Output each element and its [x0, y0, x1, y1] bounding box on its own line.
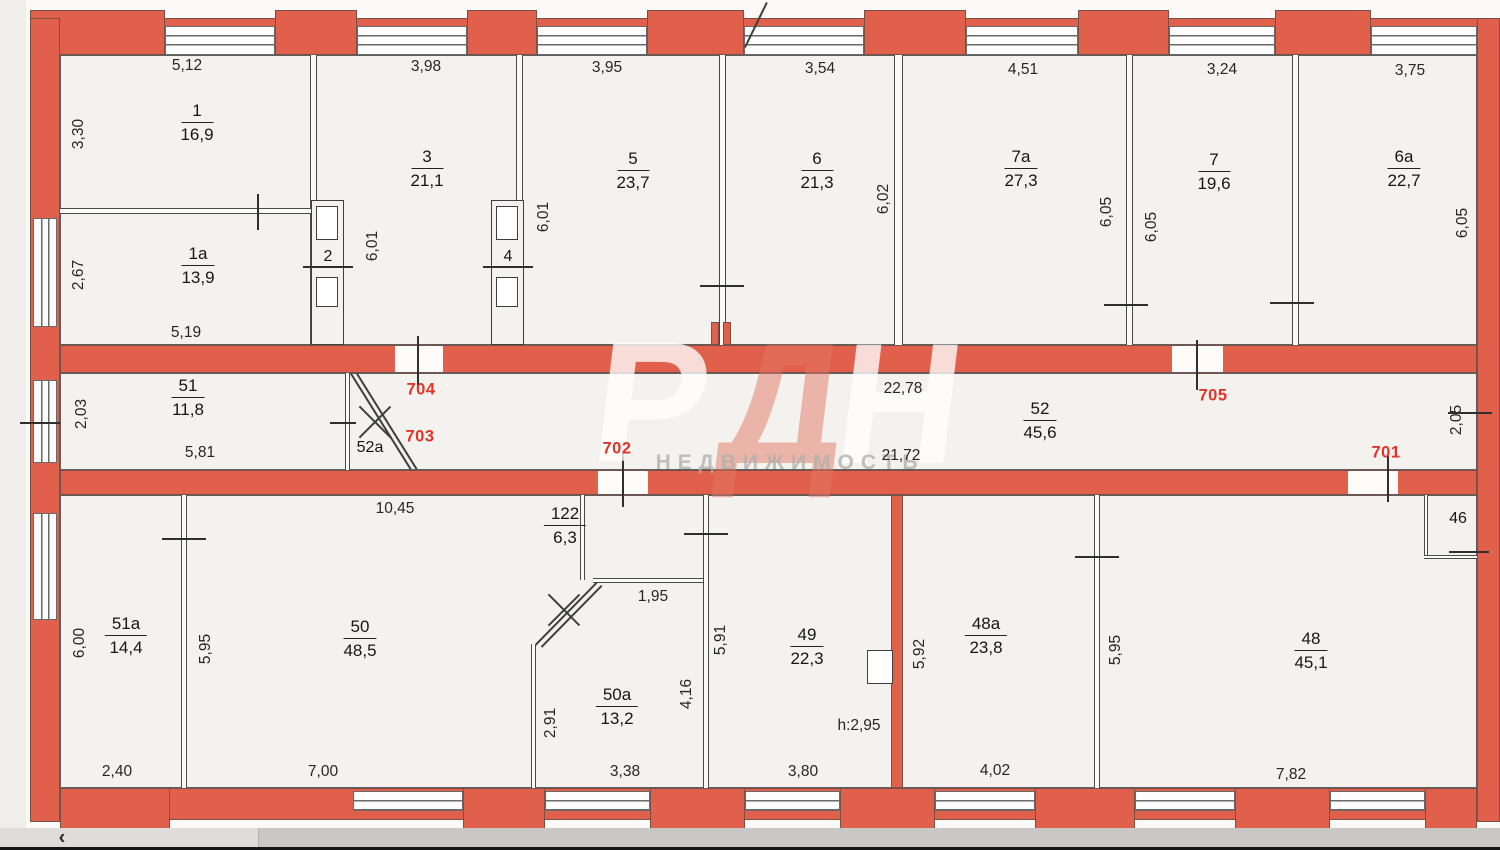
- room-label: 719,6: [1197, 150, 1230, 195]
- dim-label: 3,98: [411, 58, 441, 76]
- room-number: 6a: [1388, 147, 1421, 169]
- room-label: 1a13,9: [181, 244, 214, 289]
- door-number: 704: [406, 381, 435, 400]
- wall-pier: [864, 10, 966, 55]
- room-label: 4845,1: [1294, 629, 1327, 674]
- room-label: 51a14,4: [105, 614, 147, 659]
- room-label: 4922,3: [790, 625, 823, 670]
- room-area: 21,1: [410, 169, 443, 191]
- dimension-tick: [1270, 302, 1314, 304]
- ceiling-height-note: h:2,95: [837, 717, 880, 735]
- room-area: 19,6: [1197, 172, 1230, 194]
- dim-label: 1,95: [638, 588, 668, 606]
- dim-label: 6,02: [875, 184, 893, 214]
- window: [745, 791, 840, 811]
- room-number: 49: [791, 625, 824, 647]
- door-swing-mark: [541, 588, 585, 632]
- upper-band-floor: [60, 55, 1477, 345]
- dim-label: 10,45: [376, 500, 415, 518]
- dim-label: 7,82: [1276, 766, 1306, 784]
- lower-band-floor: [60, 495, 1477, 788]
- dim-label: 5,92: [911, 639, 929, 669]
- dim-label: 5,19: [171, 324, 201, 342]
- room-area: 23,7: [616, 171, 649, 193]
- room-number: 48: [1295, 629, 1328, 651]
- room-label: 5111,8: [172, 376, 205, 421]
- room-label: 5048,5: [343, 617, 376, 662]
- dim-label: 6,00: [71, 628, 89, 658]
- scrollbar-thumb[interactable]: [258, 828, 1500, 847]
- dimension-tick: [483, 266, 533, 268]
- dim-label: 3,38: [610, 763, 640, 781]
- window: [353, 791, 463, 811]
- dim-label: 2,91: [542, 708, 560, 738]
- room-label: 48a23,8: [965, 614, 1007, 659]
- dimension-tick: [162, 538, 206, 540]
- partition-wall: [60, 208, 312, 214]
- room-number: 52: [1024, 399, 1057, 421]
- window: [537, 26, 647, 55]
- room-area: 14,4: [105, 636, 147, 658]
- window: [1135, 791, 1235, 811]
- room-area: 23,8: [965, 636, 1007, 658]
- wall-pier: [60, 788, 170, 832]
- room-number: 6: [801, 149, 833, 171]
- door-number: 701: [1371, 444, 1400, 463]
- partition-wall: [1424, 555, 1477, 559]
- dimension-tick: [20, 422, 60, 424]
- dim-label: 2,03: [73, 399, 91, 429]
- room-label: 621,3: [800, 149, 833, 194]
- window: [1330, 791, 1425, 811]
- room-area: 16,9: [180, 123, 213, 145]
- room-number: 1a: [182, 244, 215, 266]
- dimension-tick: [1104, 304, 1148, 306]
- dim-label: 2,05: [1448, 405, 1466, 435]
- partition-wall: [703, 495, 709, 788]
- room-area: 13,9: [181, 266, 214, 288]
- dim-label: 4,16: [678, 679, 696, 709]
- room-area: 6,3: [544, 526, 586, 548]
- window: [744, 26, 864, 55]
- room-area: 48,5: [343, 639, 376, 661]
- room-label: 6a22,7: [1387, 147, 1420, 192]
- wall-pier: [463, 788, 545, 832]
- shaft-duct: [316, 206, 338, 240]
- wall-pier: [1235, 788, 1330, 832]
- wall-pier: [467, 10, 537, 55]
- wall-pier: [1275, 10, 1371, 55]
- dim-label: 3,54: [805, 60, 835, 78]
- window: [165, 26, 275, 55]
- dimension-tick: [700, 285, 744, 287]
- shaft-duct: [316, 277, 338, 307]
- room-number: 51: [172, 376, 205, 398]
- room-number: 48a: [965, 614, 1007, 636]
- partition-wall: [1126, 55, 1133, 345]
- dim-label: 5,95: [1107, 635, 1125, 665]
- bearing-wall: [891, 495, 903, 788]
- dim-label: 3,95: [592, 59, 622, 77]
- wall-pier: [275, 10, 357, 55]
- wall-pier: [840, 788, 935, 832]
- window: [1371, 26, 1477, 55]
- dim-label: 5,12: [172, 57, 202, 75]
- wall-pier: [1425, 788, 1477, 832]
- partition-wall: [593, 578, 707, 583]
- door-number: 705: [1198, 387, 1227, 406]
- dim-label: 6,05: [1098, 197, 1116, 227]
- room-area: 22,3: [790, 647, 823, 669]
- room-area: 45,1: [1294, 651, 1327, 673]
- partition-wall: [531, 644, 536, 788]
- room-number: 50: [344, 617, 377, 639]
- window: [966, 26, 1078, 55]
- wall-pier: [650, 788, 745, 832]
- room-label: 5245,6: [1023, 399, 1056, 444]
- room-number: 3: [411, 147, 443, 169]
- room-label: 7a27,3: [1004, 147, 1037, 192]
- room-area: 27,3: [1004, 169, 1037, 191]
- dim-label: 2,67: [70, 260, 88, 290]
- room-number: 7a: [1005, 147, 1038, 169]
- window: [357, 26, 467, 55]
- wall-pier: [1078, 10, 1169, 55]
- dim-label: 3,24: [1207, 61, 1237, 79]
- door-opening-701: [1348, 471, 1398, 494]
- dimension-tick: [257, 194, 259, 230]
- shaft-duct: [496, 277, 518, 307]
- partition-wall: [1094, 495, 1100, 788]
- dim-label: 4,02: [980, 762, 1010, 780]
- dim-label: 6,01: [535, 202, 553, 232]
- room-area: 45,6: [1023, 421, 1056, 443]
- dim-label: 5,95: [197, 634, 215, 664]
- dim-label: 4,51: [1008, 61, 1038, 79]
- room-number: 46: [1449, 510, 1467, 528]
- shaft-duct: [496, 206, 518, 240]
- window: [33, 513, 57, 620]
- dimension-tick: [1196, 340, 1198, 390]
- wall-pier: [1035, 788, 1135, 832]
- door-swing-mark: [352, 400, 396, 444]
- room-area: 11,8: [172, 398, 205, 420]
- room-area: 21,3: [800, 171, 833, 193]
- room-area: 22,7: [1387, 169, 1420, 191]
- dimension-tick: [303, 266, 353, 268]
- room-number: 51a: [105, 614, 147, 636]
- window: [33, 218, 57, 327]
- dimension-tick: [1387, 456, 1389, 502]
- dim-label: 22,78: [884, 380, 923, 398]
- wall-pier: [647, 10, 744, 55]
- partition-wall: [894, 55, 903, 345]
- room-label: 116,9: [180, 101, 213, 146]
- room-number: 5: [617, 149, 649, 171]
- dim-label: 6,05: [1454, 208, 1472, 238]
- door-number: 703: [405, 428, 434, 447]
- dim-label: 6,05: [1143, 212, 1161, 242]
- dim-label: 21,72: [882, 447, 921, 465]
- room-number: 122: [544, 504, 586, 526]
- dimension-tick: [684, 533, 728, 535]
- dim-label: 3,75: [1395, 62, 1425, 80]
- dim-label: 2,40: [102, 763, 132, 781]
- room-number: 7: [1198, 150, 1230, 172]
- floor-plan-scan: Р Д Н НЕДВИЖИМОСТЬ 116,9 1a13,9 321,1 52…: [0, 0, 1500, 850]
- window: [935, 791, 1035, 811]
- room-number: 1: [181, 101, 213, 123]
- dimension-tick: [1075, 556, 1119, 558]
- dimension-tick: [1449, 551, 1489, 553]
- room-area: 13,2: [596, 707, 638, 729]
- room-label: 1226,3: [544, 504, 586, 549]
- window: [545, 791, 650, 811]
- outer-wall-right: [1477, 18, 1500, 822]
- room-label: 50a13,2: [596, 685, 638, 730]
- shaft-number: 4: [504, 248, 513, 266]
- dim-label: 5,91: [712, 625, 730, 655]
- room-number: 52a: [357, 439, 384, 457]
- room-label: 523,7: [616, 149, 649, 194]
- window: [1169, 26, 1275, 55]
- page-edge-shadow: [0, 0, 26, 828]
- room-label: 321,1: [410, 147, 443, 192]
- wall-niche: [867, 650, 893, 684]
- shaft-number: 2: [324, 248, 333, 266]
- dim-label: 6,01: [364, 231, 382, 261]
- partition-wall: [1424, 495, 1428, 558]
- dimension-tick: [330, 422, 356, 424]
- partition-wall: [719, 55, 726, 345]
- dim-label: 7,00: [308, 763, 338, 781]
- dim-label: 3,30: [70, 119, 88, 149]
- room-number: 50a: [596, 685, 638, 707]
- dim-label: 3,80: [788, 763, 818, 781]
- door-number: 702: [602, 440, 631, 459]
- dim-label: 5,81: [185, 444, 215, 462]
- door-opening-704: [395, 346, 443, 372]
